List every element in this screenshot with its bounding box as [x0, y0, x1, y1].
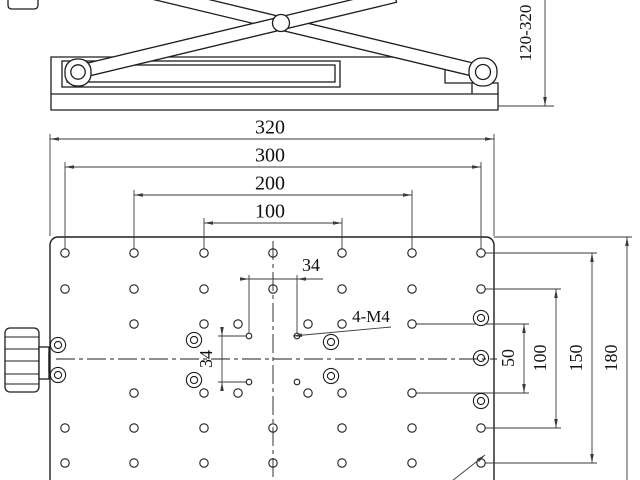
arrowhead — [554, 419, 558, 428]
plate-hole — [408, 424, 416, 432]
lab-jack-drawing: 3203002001005010015018034344-M4120-320 — [0, 0, 640, 480]
arrowhead — [472, 165, 481, 169]
dim-label-width: 300 — [255, 145, 285, 167]
plate-hole — [304, 389, 312, 397]
plate-hole — [338, 459, 346, 467]
dim-label-height: 50 — [498, 349, 518, 367]
plate-hole — [477, 285, 485, 293]
left-pivot-pin — [71, 65, 85, 79]
plate-hole — [477, 249, 485, 257]
arrowhead — [134, 193, 143, 197]
plate-hole — [130, 249, 138, 257]
plate-hole — [130, 459, 138, 467]
plate-hole — [200, 459, 208, 467]
arrowhead — [485, 137, 494, 141]
dim-label-height: 150 — [566, 345, 586, 372]
plate-hole — [234, 389, 242, 397]
dim-label-height: 100 — [530, 345, 550, 372]
plate-hole — [200, 424, 208, 432]
arrowhead — [403, 193, 412, 197]
dim-label-height-range: 120-320 — [516, 5, 535, 62]
arrowhead — [65, 165, 74, 169]
dim-label-34v: 34 — [196, 350, 216, 368]
plate-hole — [338, 424, 346, 432]
plate-hole — [338, 285, 346, 293]
plate-hole — [130, 320, 138, 328]
plate-hole — [200, 389, 208, 397]
arrowhead — [50, 137, 59, 141]
plate-hole — [408, 249, 416, 257]
arrowhead — [543, 97, 547, 106]
counterbore-hole-inner — [54, 371, 61, 378]
plate-hole — [477, 424, 485, 432]
thread-callout-label: 4-M4 — [352, 307, 390, 326]
counterbore-hole-inner — [477, 397, 484, 404]
adjustment-knob — [5, 328, 54, 392]
side-view — [8, 0, 498, 110]
plate-hole — [200, 249, 208, 257]
plate-hole — [408, 459, 416, 467]
plate-hole — [408, 285, 416, 293]
plate-hole — [130, 285, 138, 293]
plate-hole — [61, 459, 69, 467]
plate-hole — [338, 320, 346, 328]
m4-tapped-hole — [246, 333, 252, 339]
counterbore-hole-inner — [477, 314, 484, 321]
plate-hole — [61, 249, 69, 257]
plate-hole — [61, 285, 69, 293]
plate-hole — [338, 389, 346, 397]
dim-label-width: 320 — [255, 117, 285, 139]
plate-hole — [408, 320, 416, 328]
counterbore-hole-inner — [190, 336, 197, 343]
technical-drawing-page: 3203002001005010015018034344-M4120-320 — [0, 0, 640, 480]
arrowhead — [204, 221, 213, 225]
plate-hole — [200, 320, 208, 328]
knob-shaft — [39, 347, 49, 379]
m4-tapped-hole — [246, 379, 252, 385]
counterbore-hole-inner — [477, 354, 484, 361]
plate-hole — [61, 424, 69, 432]
dim-label-34h: 34 — [302, 255, 320, 275]
dim-label-height: 180 — [601, 345, 621, 372]
plate-hole — [130, 389, 138, 397]
dim-label-width: 200 — [255, 173, 285, 195]
right-pivot-pin — [476, 65, 491, 80]
counterbore-hole-inner — [54, 341, 61, 348]
center-pivot-pin — [273, 15, 290, 32]
arrowhead — [333, 221, 342, 225]
knob-body — [5, 328, 39, 392]
platform-plate — [50, 237, 494, 480]
arrowhead — [554, 289, 558, 298]
top-platform-cap — [8, 0, 38, 9]
arrowhead — [522, 384, 526, 393]
arrowhead — [625, 237, 629, 246]
counterbore-hole-inner — [190, 376, 197, 383]
plate-hole — [234, 320, 242, 328]
dim-label-width: 100 — [255, 201, 285, 223]
plate-hole — [338, 249, 346, 257]
arrowhead — [590, 253, 594, 262]
plate-hole — [408, 389, 416, 397]
counterbore-hole-inner — [327, 338, 334, 345]
arrowhead — [522, 324, 526, 333]
plate-hole — [130, 424, 138, 432]
plate-hole — [200, 285, 208, 293]
plate-hole — [304, 320, 312, 328]
m4-tapped-hole — [294, 379, 300, 385]
arrowhead — [590, 454, 594, 463]
counterbore-hole-inner — [327, 372, 334, 379]
